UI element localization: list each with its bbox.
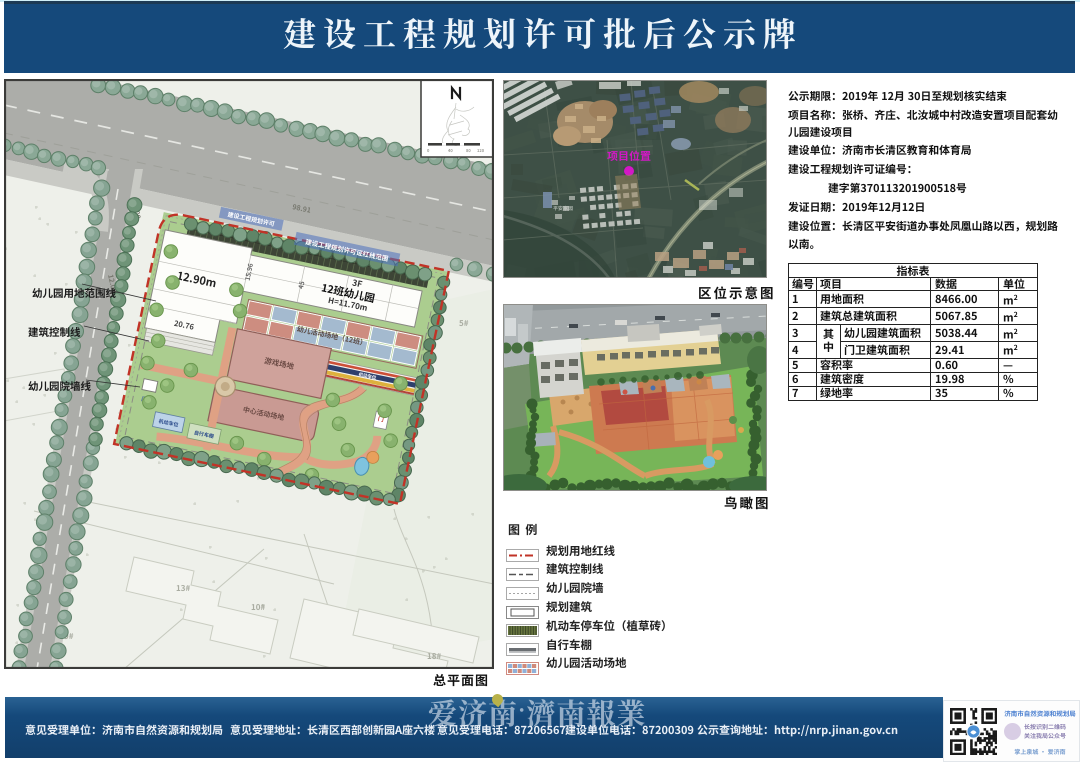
- svg-text:10#: 10#: [251, 602, 265, 613]
- svg-text:幼儿园用地范围线: 幼儿园用地范围线: [32, 286, 116, 301]
- svg-text:40: 40: [448, 148, 453, 154]
- svg-text:80: 80: [466, 148, 471, 154]
- svg-text:13#: 13#: [176, 583, 190, 594]
- svg-text:幼儿园院墙线: 幼儿园院墙线: [28, 379, 91, 394]
- svg-text:5#: 5#: [459, 318, 469, 329]
- svg-text:120: 120: [477, 148, 485, 154]
- svg-text:平安家园: 平安家园: [553, 205, 573, 212]
- svg-text:项目位置: 项目位置: [607, 148, 651, 164]
- svg-text:建筑控制线: 建筑控制线: [28, 325, 81, 340]
- svg-text:18#: 18#: [427, 651, 441, 662]
